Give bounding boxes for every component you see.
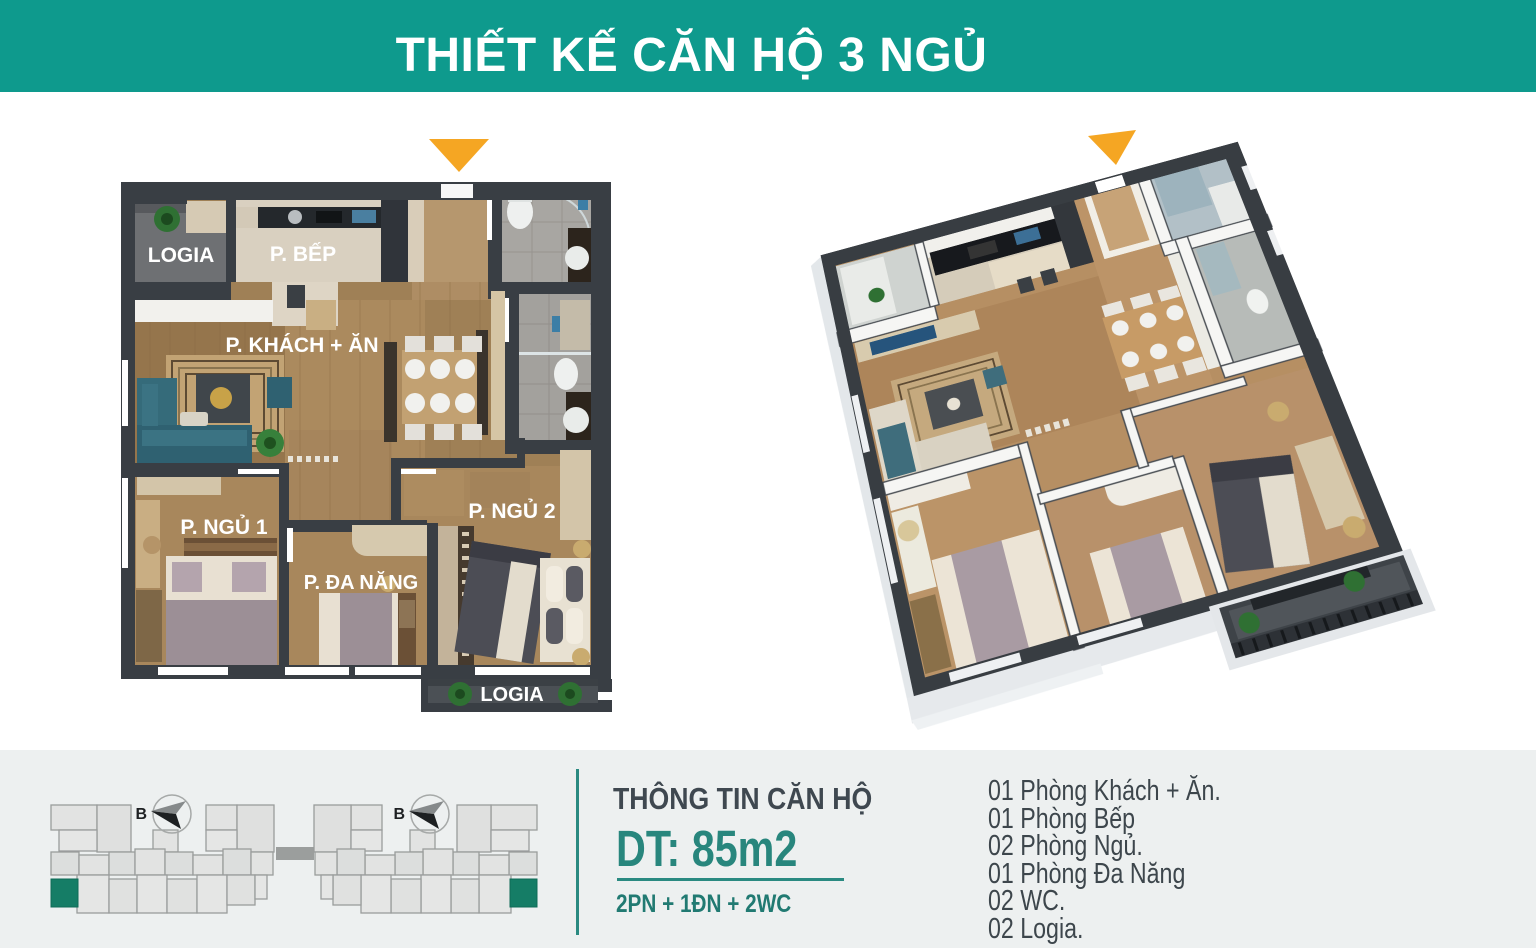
svg-text:B: B [135, 806, 147, 823]
svg-text:B: B [393, 806, 405, 823]
